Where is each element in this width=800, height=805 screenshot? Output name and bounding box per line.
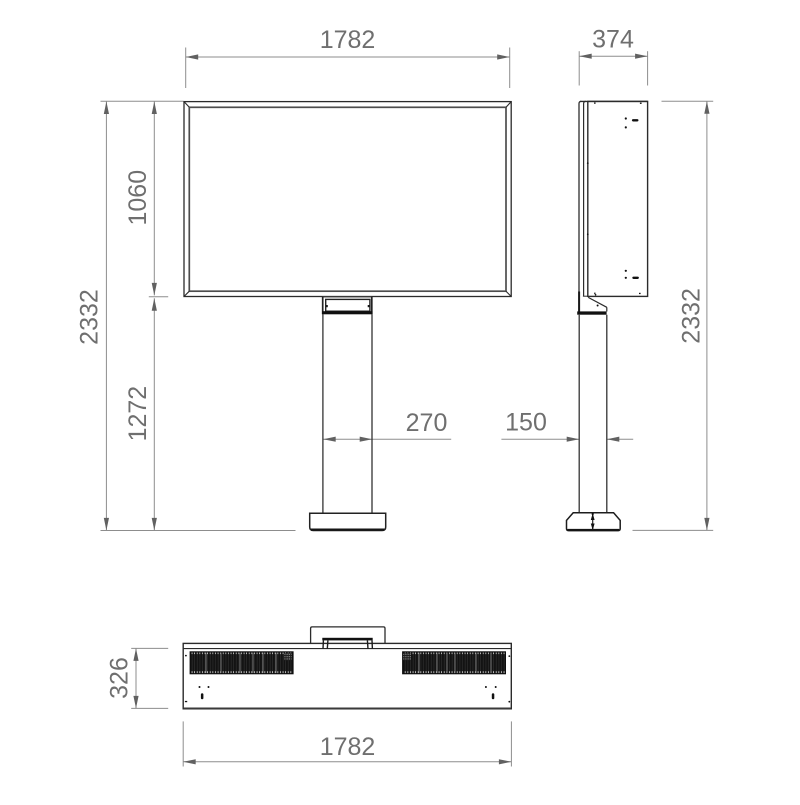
svg-text:374: 374 — [592, 26, 634, 54]
svg-text:1060: 1060 — [124, 170, 152, 226]
svg-text:270: 270 — [406, 409, 448, 437]
svg-text:150: 150 — [505, 409, 547, 437]
svg-text:1782: 1782 — [320, 26, 376, 54]
svg-text:326: 326 — [106, 657, 134, 699]
svg-text:1272: 1272 — [124, 386, 152, 442]
svg-text:1782: 1782 — [320, 733, 376, 761]
svg-text:2332: 2332 — [677, 288, 705, 344]
svg-text:2332: 2332 — [76, 289, 104, 345]
